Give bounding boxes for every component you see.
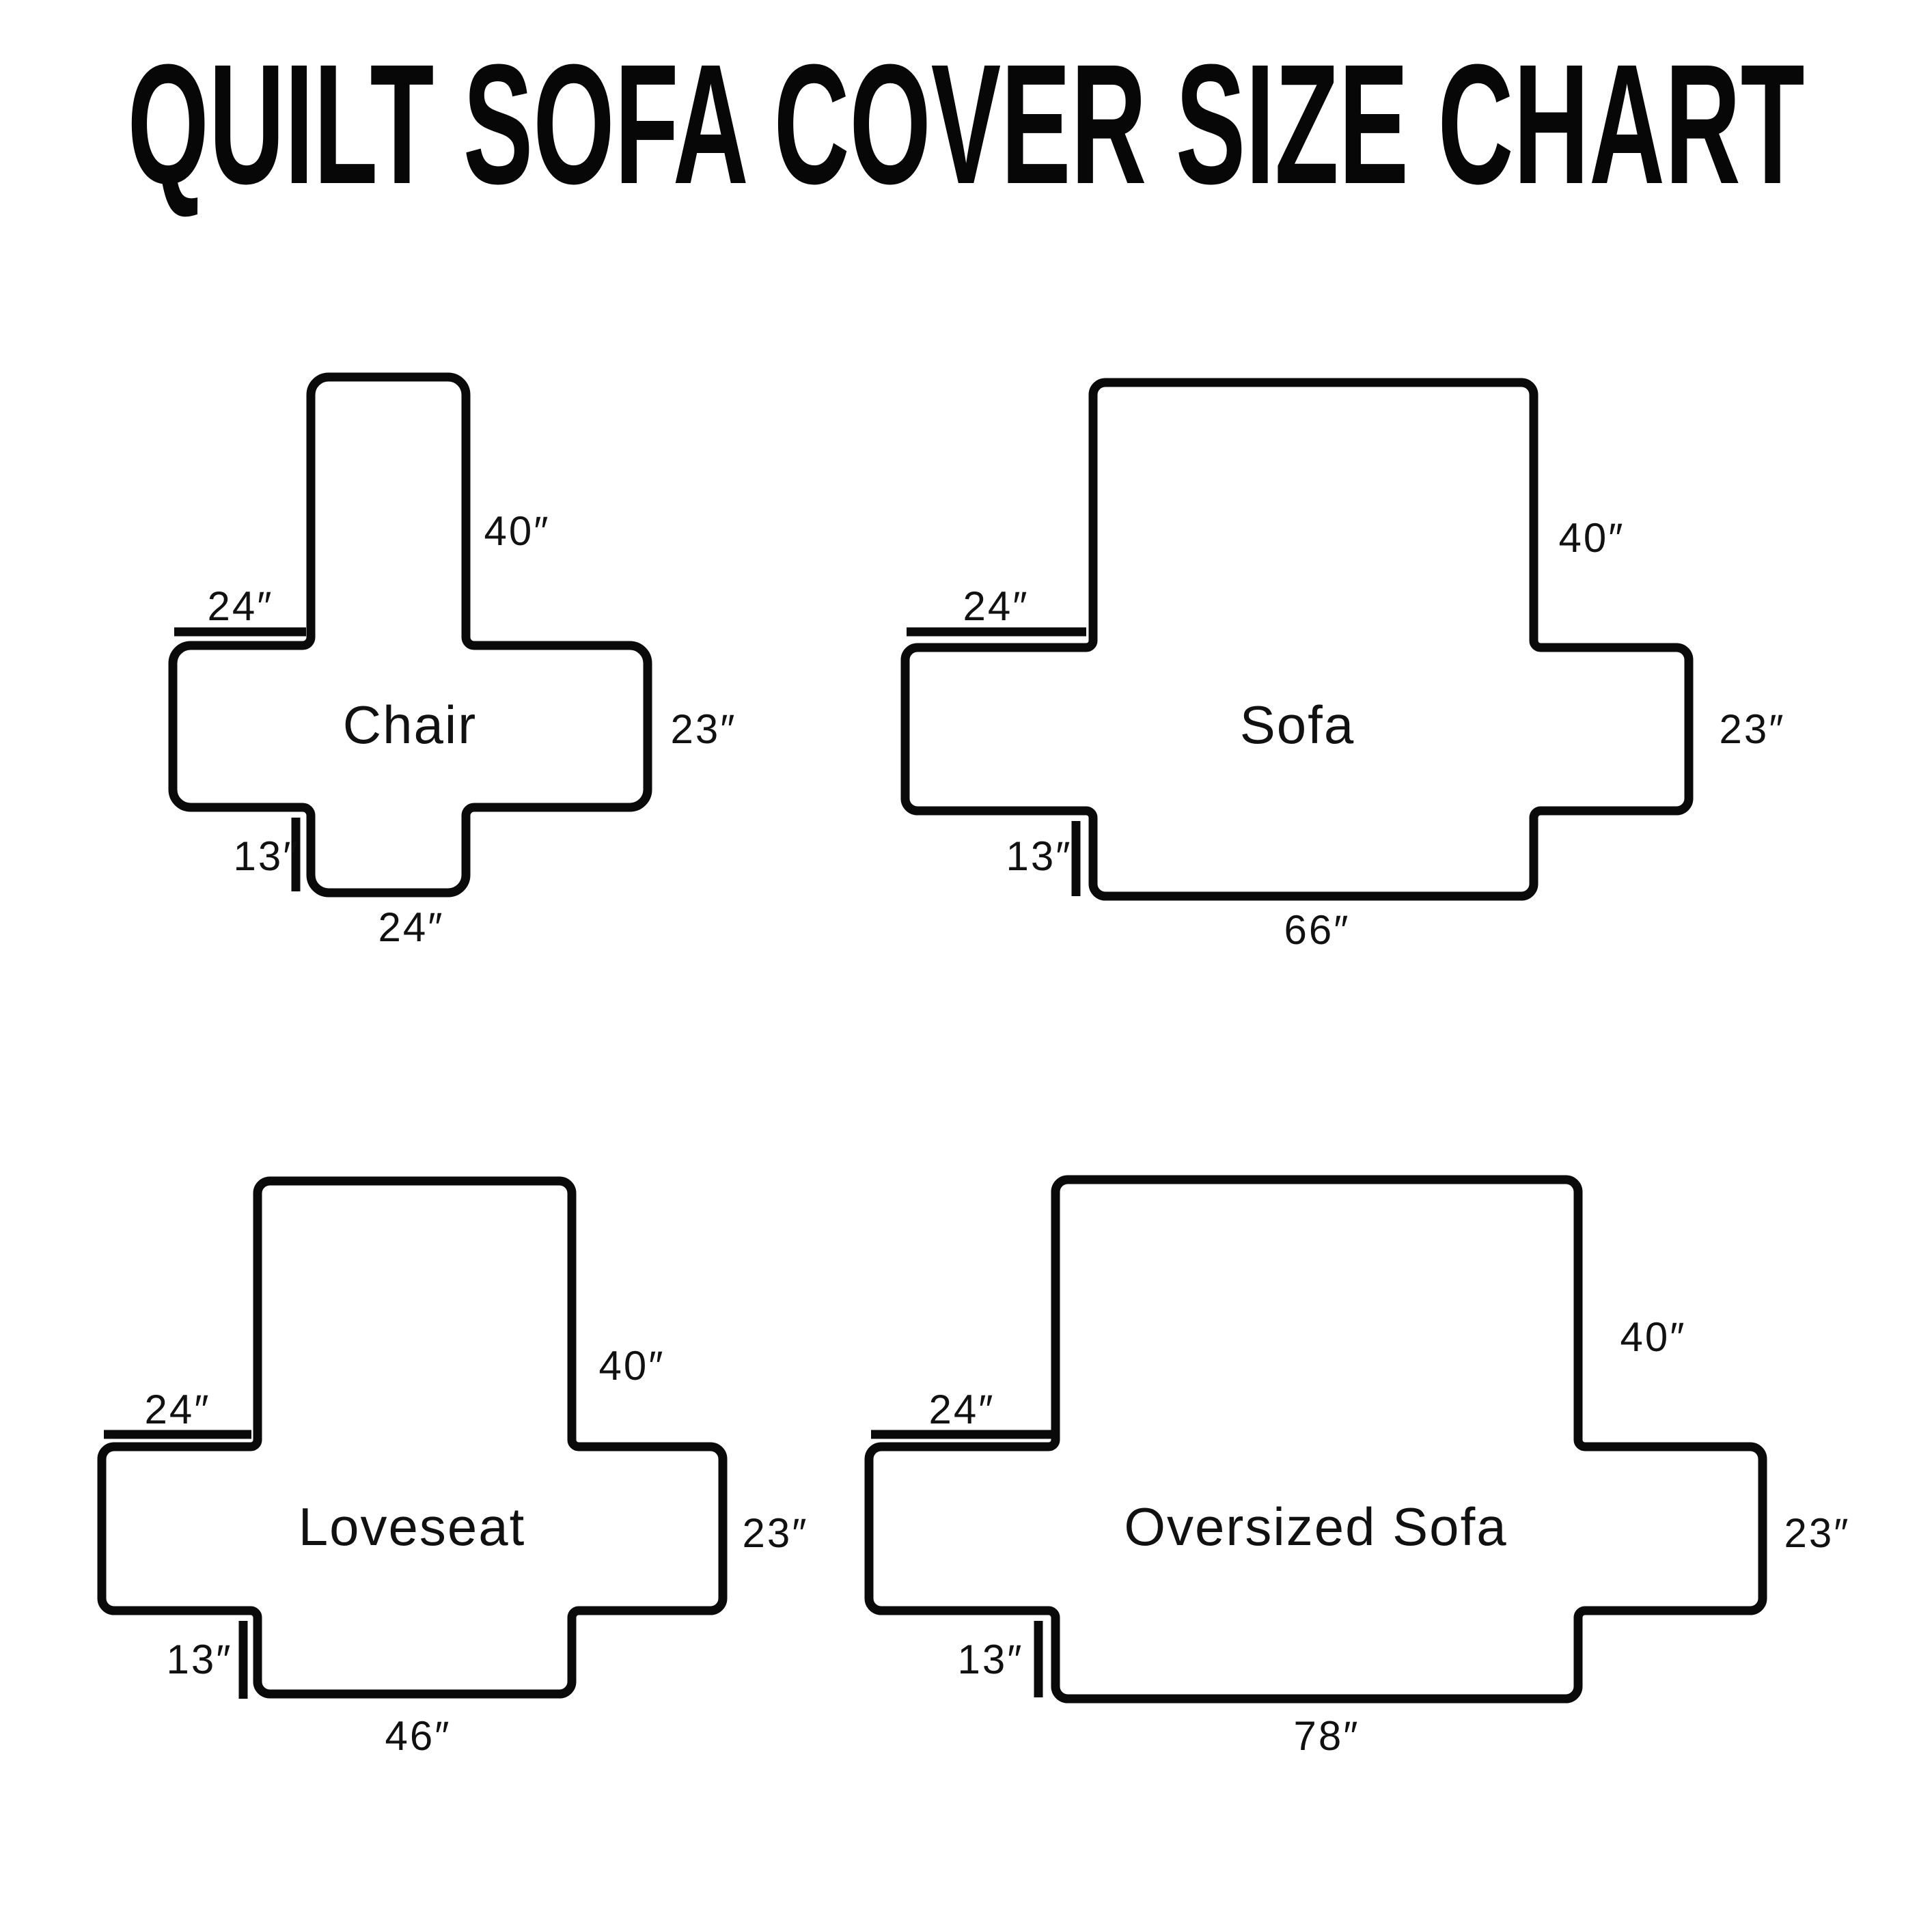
- oversized-sofa-diagram: 40″ 24″ 23″ 13″ 78″ Oversized Sofa: [869, 1180, 1850, 1759]
- chair-diagram: 40″ 24″ 23″ 13″ 24″ Chair: [173, 377, 736, 950]
- size-chart-canvas: QUILT SOFA COVER SIZE CHART 40″ 24″ 23″ …: [0, 0, 1932, 1918]
- chair-side-height-label: 23″: [671, 706, 737, 752]
- loveseat-arm-width-label: 24″: [145, 1387, 211, 1432]
- chair-name: Chair: [343, 695, 477, 755]
- sofa-arm-width-label: 24″: [963, 583, 1030, 629]
- loveseat-skirt-height-label: 13″: [167, 1637, 233, 1682]
- loveseat-back-height-label: 40″: [599, 1343, 665, 1389]
- oversized-sofa-cover-outline: [869, 1180, 1763, 1699]
- chair-skirt-height-label: 13″: [234, 833, 300, 879]
- quilt-sofa-cover-size-chart-page: { "title": "QUILT SOFA COVER SIZE CHART"…: [0, 0, 1932, 1918]
- sofa-side-height-label: 23″: [1720, 706, 1786, 752]
- loveseat-diagram: 40″ 24″ 23″ 13″ 46″ Loveseat: [102, 1181, 808, 1759]
- loveseat-side-height-label: 23″: [743, 1510, 809, 1556]
- chair-bottom-width-label: 24″: [378, 904, 445, 950]
- chair-back-height-label: 40″: [484, 508, 551, 554]
- oversized-sofa-name: Oversized Sofa: [1124, 1497, 1507, 1557]
- loveseat-bottom-width-label: 46″: [385, 1713, 452, 1759]
- page-title: QUILT SOFA COVER SIZE CHART: [128, 29, 1805, 219]
- sofa-diagram: 40″ 24″ 23″ 13″ 66″ Sofa: [905, 383, 1785, 953]
- sofa-name: Sofa: [1240, 695, 1355, 755]
- sofa-back-height-label: 40″: [1559, 515, 1625, 561]
- loveseat-name: Loveseat: [299, 1497, 526, 1557]
- oversized-sofa-side-height-label: 23″: [1784, 1510, 1851, 1556]
- chair-arm-width-label: 24″: [208, 583, 274, 629]
- oversized-sofa-skirt-height-label: 13″: [958, 1637, 1024, 1682]
- sofa-cover-outline: [905, 383, 1689, 896]
- oversized-sofa-arm-width-label: 24″: [929, 1387, 995, 1432]
- oversized-sofa-bottom-width-label: 78″: [1294, 1713, 1360, 1759]
- sofa-bottom-width-label: 66″: [1284, 907, 1351, 953]
- sofa-skirt-height-label: 13″: [1006, 833, 1073, 879]
- oversized-sofa-back-height-label: 40″: [1620, 1314, 1687, 1360]
